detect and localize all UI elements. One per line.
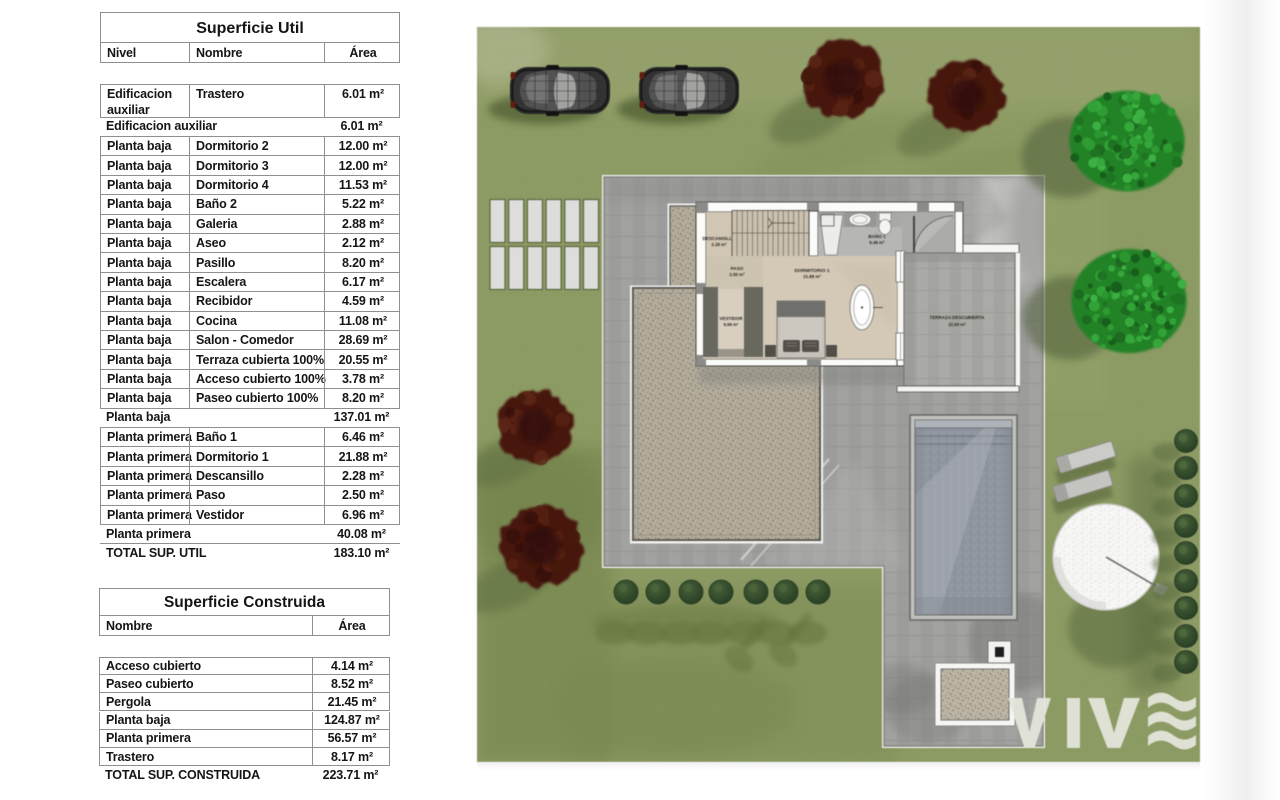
- svg-text:DESCANSILLO: DESCANSILLO: [703, 236, 736, 241]
- svg-text:BAÑO 1: BAÑO 1: [868, 233, 886, 239]
- svg-text:2.28 m²: 2.28 m²: [711, 242, 727, 247]
- svg-text:TERRAZA DESCUBIERTA: TERRAZA DESCUBIERTA: [930, 315, 985, 320]
- svg-text:21.88 m²: 21.88 m²: [803, 274, 821, 279]
- svg-text:6.46 m²: 6.46 m²: [869, 240, 885, 245]
- svg-text:6.96 m²: 6.96 m²: [724, 322, 739, 327]
- svg-text:VESTIDOR: VESTIDOR: [719, 316, 743, 321]
- svg-text:2.50 m²: 2.50 m²: [729, 272, 745, 277]
- svg-text:22.00 m²: 22.00 m²: [948, 322, 966, 327]
- svg-text:PASO: PASO: [731, 266, 744, 271]
